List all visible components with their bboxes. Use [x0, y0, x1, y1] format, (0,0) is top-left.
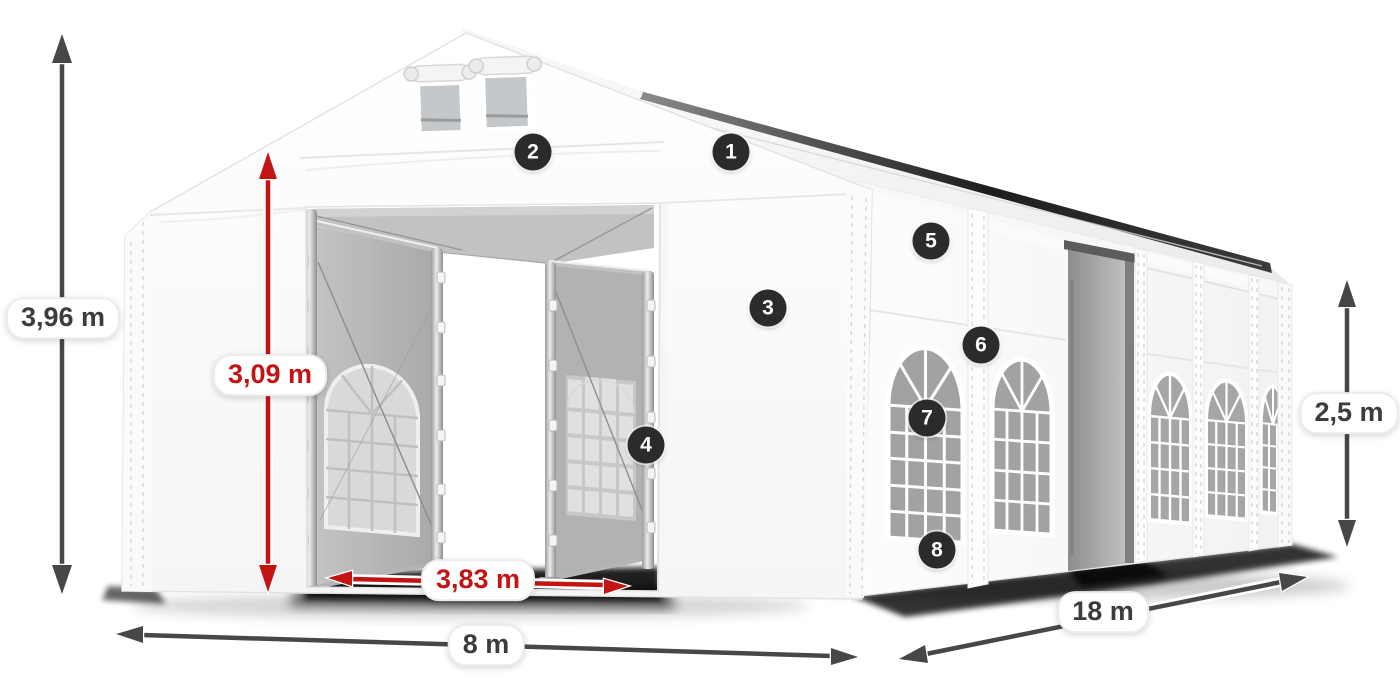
entrance-door-panel-right [549, 261, 650, 581]
tent-illustration [0, 0, 1400, 700]
hotspot-marker-2[interactable]: 2 [515, 134, 552, 171]
entrance-door-panel-left [312, 220, 440, 589]
dimension-label-entrance-width: 3,83 m [421, 559, 535, 601]
hotspot-marker-1[interactable]: 1 [713, 134, 750, 171]
hotspot-marker-4[interactable]: 4 [628, 427, 665, 464]
dimension-label-entrance-height: 3,09 m [213, 354, 327, 396]
tent-diagram: 3,96 m 3,09 m 3,83 m 8 m 18 m 2,5 m 1 2 … [0, 0, 1400, 700]
dimension-label-total-height: 3,96 m [6, 297, 120, 339]
front-left-corner-band [122, 212, 152, 592]
side-window-1 [888, 345, 963, 543]
hotspot-marker-7[interactable]: 7 [909, 400, 946, 437]
gable-window-left-roll [411, 64, 470, 82]
hotspot-marker-6[interactable]: 6 [963, 327, 1000, 364]
side-door-opening [1064, 240, 1136, 571]
hotspot-marker-3[interactable]: 3 [750, 290, 787, 327]
hotspot-marker-5[interactable]: 5 [913, 223, 950, 260]
entrance-door-window-right [566, 375, 636, 521]
dimension-label-length: 18 m [1057, 591, 1149, 633]
side-window-4 [1206, 379, 1247, 520]
dimension-label-side-height: 2,5 m [1299, 392, 1398, 434]
side-window-2 [992, 357, 1052, 535]
entrance-pole-panel-left [431, 248, 443, 566]
dimension-label-width: 8 m [448, 624, 525, 666]
hotspot-marker-8[interactable]: 8 [919, 532, 956, 569]
side-window-3 [1149, 372, 1191, 524]
